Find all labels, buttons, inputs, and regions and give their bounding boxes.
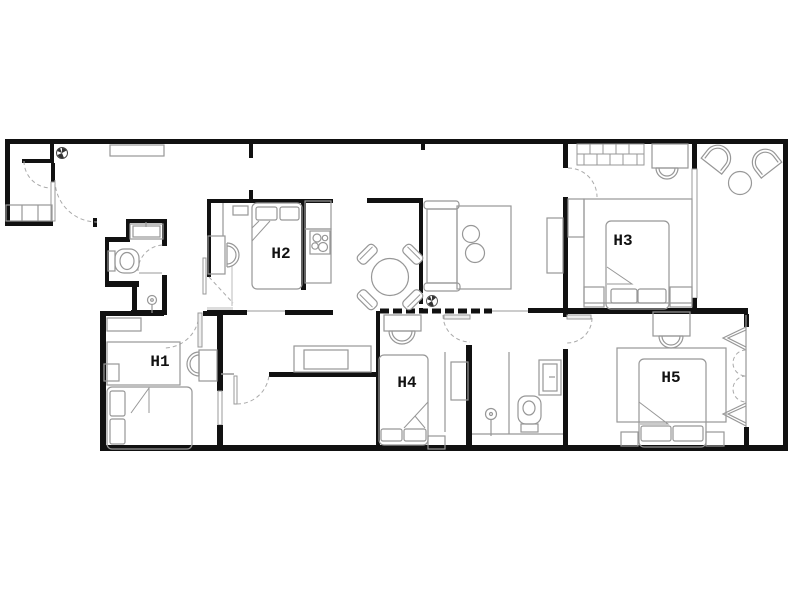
svg-text:H3: H3 [613,232,632,250]
svg-text:H5: H5 [661,369,680,387]
svg-text:H4: H4 [397,374,417,392]
svg-text:H2: H2 [271,245,290,263]
svg-text:H1: H1 [150,353,169,371]
